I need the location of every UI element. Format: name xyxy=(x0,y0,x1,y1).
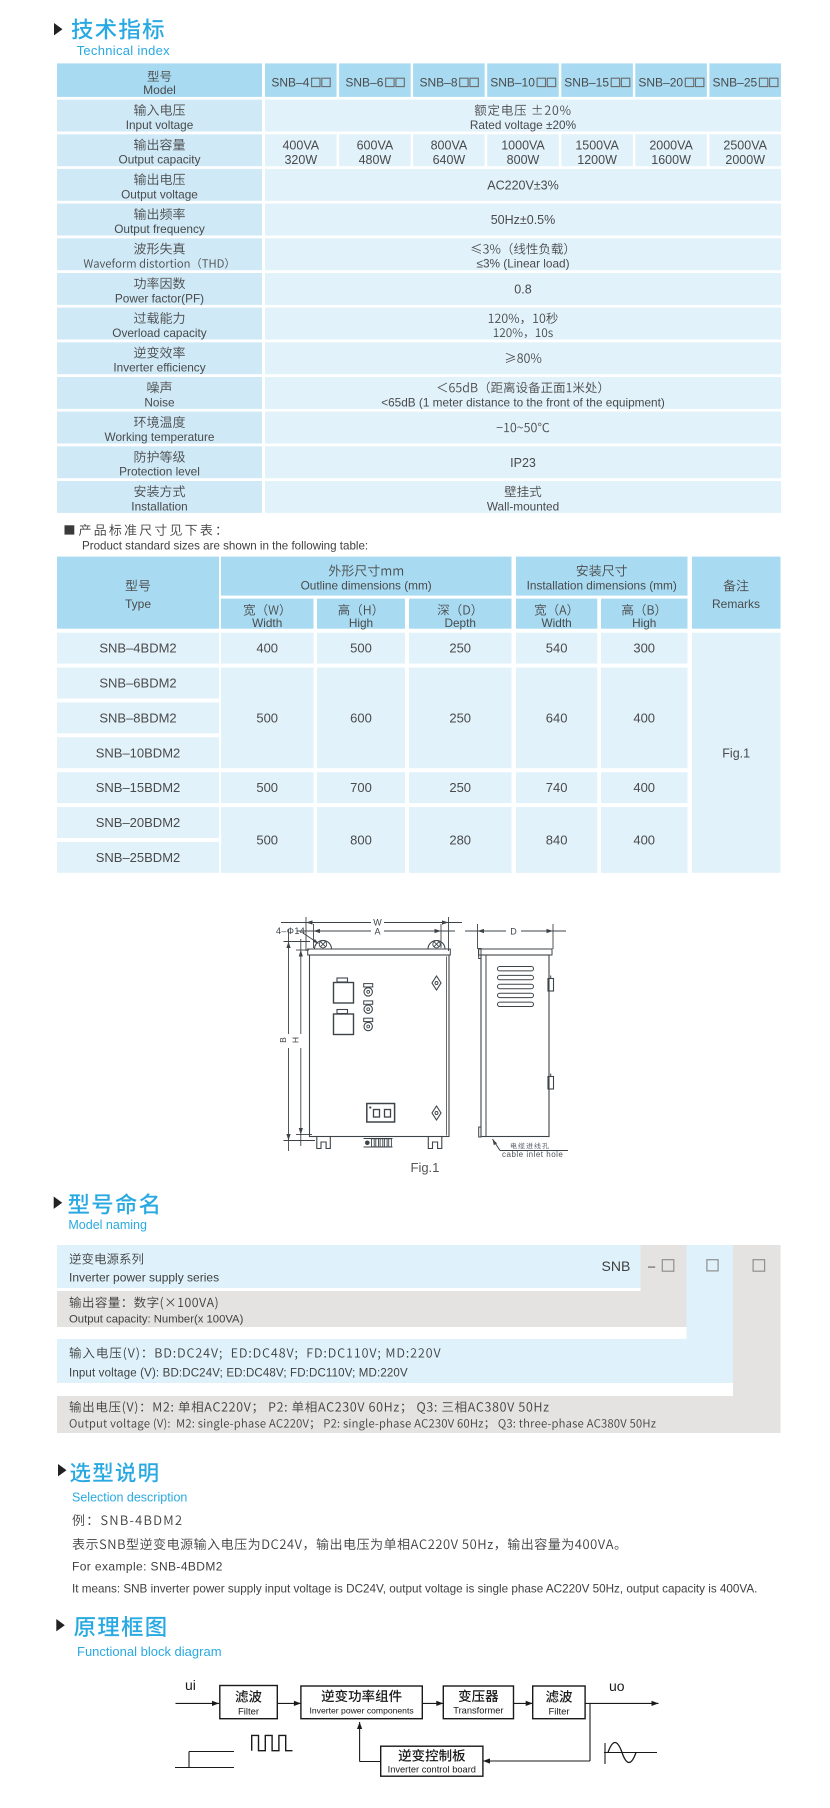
svg-text:840: 840 xyxy=(546,832,568,847)
svg-text:SNB–15BDM2: SNB–15BDM2 xyxy=(96,780,181,795)
svg-text:4–Φ14: 4–Φ14 xyxy=(276,926,305,936)
svg-text:320W: 320W xyxy=(284,153,317,167)
svg-text:800: 800 xyxy=(350,832,372,847)
svg-text:800W: 800W xyxy=(507,153,540,167)
svg-text:Fig.1: Fig.1 xyxy=(722,746,750,760)
svg-text:Noise: Noise xyxy=(144,395,175,409)
svg-text:250: 250 xyxy=(449,641,471,656)
svg-text:400VA: 400VA xyxy=(282,139,319,153)
svg-text:cable inlet hole: cable inlet hole xyxy=(502,1150,563,1159)
svg-text:SNB–8: SNB–8 xyxy=(420,76,458,90)
svg-text:SNB–25: SNB–25 xyxy=(713,76,758,90)
svg-text:300: 300 xyxy=(633,641,655,656)
svg-text:2000VA: 2000VA xyxy=(649,139,693,153)
svg-text:High: High xyxy=(632,616,656,630)
svg-text:Remarks: Remarks xyxy=(712,597,760,611)
svg-text:2000W: 2000W xyxy=(725,153,765,167)
svg-text:2500VA: 2500VA xyxy=(723,139,767,153)
svg-text:SNB–25BDM2: SNB–25BDM2 xyxy=(96,850,181,865)
svg-text:SNB–8BDM2: SNB–8BDM2 xyxy=(99,710,176,725)
svg-text:SNB–10: SNB–10 xyxy=(490,76,535,90)
svg-text:Model naming: Model naming xyxy=(68,1218,147,1232)
svg-text:Selection description: Selection description xyxy=(72,1491,187,1505)
svg-text:1200W: 1200W xyxy=(577,153,617,167)
svg-text:Functional block diagram: Functional block diagram xyxy=(77,1644,222,1659)
svg-text:A: A xyxy=(374,927,380,937)
svg-text:1500VA: 1500VA xyxy=(575,139,619,153)
svg-text:Technical index: Technical index xyxy=(77,43,171,58)
svg-text:700: 700 xyxy=(350,780,372,795)
svg-text:Filter: Filter xyxy=(238,1707,259,1718)
svg-text:480W: 480W xyxy=(359,153,392,167)
svg-text:D: D xyxy=(510,927,517,937)
svg-text:600VA: 600VA xyxy=(357,139,394,153)
svg-text:Filter: Filter xyxy=(548,1707,569,1718)
svg-text:Wall-mounted: Wall-mounted xyxy=(487,499,559,513)
svg-text:540: 540 xyxy=(546,641,568,656)
svg-text:SNB–15: SNB–15 xyxy=(564,76,609,90)
svg-text:50Hz±0.5%: 50Hz±0.5% xyxy=(491,213,556,227)
svg-text:uo: uo xyxy=(609,1678,625,1694)
svg-text:250: 250 xyxy=(449,710,471,725)
svg-text:280: 280 xyxy=(449,832,471,847)
svg-text:Model: Model xyxy=(143,83,176,97)
svg-text:Installation: Installation xyxy=(131,499,187,513)
svg-text:ui: ui xyxy=(185,1677,196,1693)
svg-text:Output voltage: Output voltage xyxy=(121,187,198,201)
svg-text:SNB–6BDM2: SNB–6BDM2 xyxy=(99,676,176,691)
svg-text:For example: SNB-4BDM2: For example: SNB-4BDM2 xyxy=(72,1560,223,1574)
svg-text:Output capacity: Output capacity xyxy=(119,153,201,167)
svg-text:500: 500 xyxy=(350,641,372,656)
svg-text:500: 500 xyxy=(256,832,278,847)
svg-text:Power factor(PF): Power factor(PF) xyxy=(115,291,204,305)
svg-text:Rated voltage ±20%: Rated voltage ±20% xyxy=(470,118,577,132)
svg-text:SNB–4BDM2: SNB–4BDM2 xyxy=(99,641,176,656)
svg-text:SNB–20BDM2: SNB–20BDM2 xyxy=(96,815,181,830)
svg-text:≤3% (Linear load): ≤3% (Linear load) xyxy=(476,257,569,271)
svg-text:400: 400 xyxy=(633,710,655,725)
svg-text:Inverter efficiency: Inverter efficiency xyxy=(113,361,205,375)
svg-text:SNB–4: SNB–4 xyxy=(271,76,309,90)
svg-text:Inverter power supply series: Inverter power supply series xyxy=(69,1271,219,1285)
svg-text:<65dB (1 meter distance to the: <65dB (1 meter distance to the front of … xyxy=(381,395,665,409)
svg-text:Input voltage (V): BD:DC24V;: Input voltage (V): BD:DC24V; ED:DC48V; F… xyxy=(69,1368,408,1380)
svg-text:Fig.1: Fig.1 xyxy=(411,1160,440,1175)
svg-text:SNB–20: SNB–20 xyxy=(638,76,683,90)
svg-text:Inverter control board: Inverter control board xyxy=(388,1765,476,1775)
svg-text:800VA: 800VA xyxy=(431,139,468,153)
svg-text:400: 400 xyxy=(633,780,655,795)
svg-text:Width: Width xyxy=(252,616,282,630)
svg-text:SNB–6: SNB–6 xyxy=(345,76,383,90)
svg-text:AC220V±3%: AC220V±3% xyxy=(487,178,558,192)
svg-text:640W: 640W xyxy=(433,153,466,167)
svg-text:Type: Type xyxy=(125,597,151,611)
svg-text:Outline dimensions (mm): Outline dimensions (mm) xyxy=(301,579,432,593)
svg-text:High: High xyxy=(349,616,373,630)
svg-text:–: – xyxy=(648,1259,656,1274)
svg-text:Width: Width xyxy=(542,616,572,630)
svg-text:1000VA: 1000VA xyxy=(501,139,545,153)
svg-text:500: 500 xyxy=(256,710,278,725)
svg-text:400: 400 xyxy=(633,832,655,847)
svg-text:Working temperature: Working temperature xyxy=(105,430,215,444)
svg-text:500: 500 xyxy=(256,780,278,795)
svg-text:Overload capacity: Overload capacity xyxy=(112,326,207,340)
svg-text:It means: SNB inverter power s: It means: SNB inverter power supply inpu… xyxy=(72,1583,757,1596)
svg-text:1600W: 1600W xyxy=(651,153,691,167)
svg-text:Output capacity: Number(x 100V: Output capacity: Number(x 100VA) xyxy=(69,1314,244,1326)
svg-text:H: H xyxy=(291,1037,301,1043)
svg-text:250: 250 xyxy=(449,780,471,795)
svg-text:600: 600 xyxy=(350,710,372,725)
svg-text:Installation dimensions (mm): Installation dimensions (mm) xyxy=(527,579,677,593)
svg-text:SNB–10BDM2: SNB–10BDM2 xyxy=(96,745,181,760)
svg-text:Inverter power components: Inverter power components xyxy=(310,1706,414,1716)
svg-text:0.8: 0.8 xyxy=(514,282,531,296)
svg-text:Protection level: Protection level xyxy=(119,465,200,479)
svg-text:Product standard sizes are sho: Product standard sizes are shown in the … xyxy=(82,540,368,553)
svg-text:B: B xyxy=(278,1037,288,1043)
svg-text:640: 640 xyxy=(546,710,568,725)
svg-text:Transformer: Transformer xyxy=(453,1706,503,1716)
svg-text:Input voltage: Input voltage xyxy=(126,118,194,132)
svg-text:Output frequency: Output frequency xyxy=(114,222,205,236)
svg-text:IP23: IP23 xyxy=(510,456,536,470)
svg-text:400: 400 xyxy=(256,641,278,656)
svg-text:740: 740 xyxy=(546,780,568,795)
svg-text:SNB: SNB xyxy=(602,1258,631,1274)
svg-text:Depth: Depth xyxy=(444,616,475,630)
